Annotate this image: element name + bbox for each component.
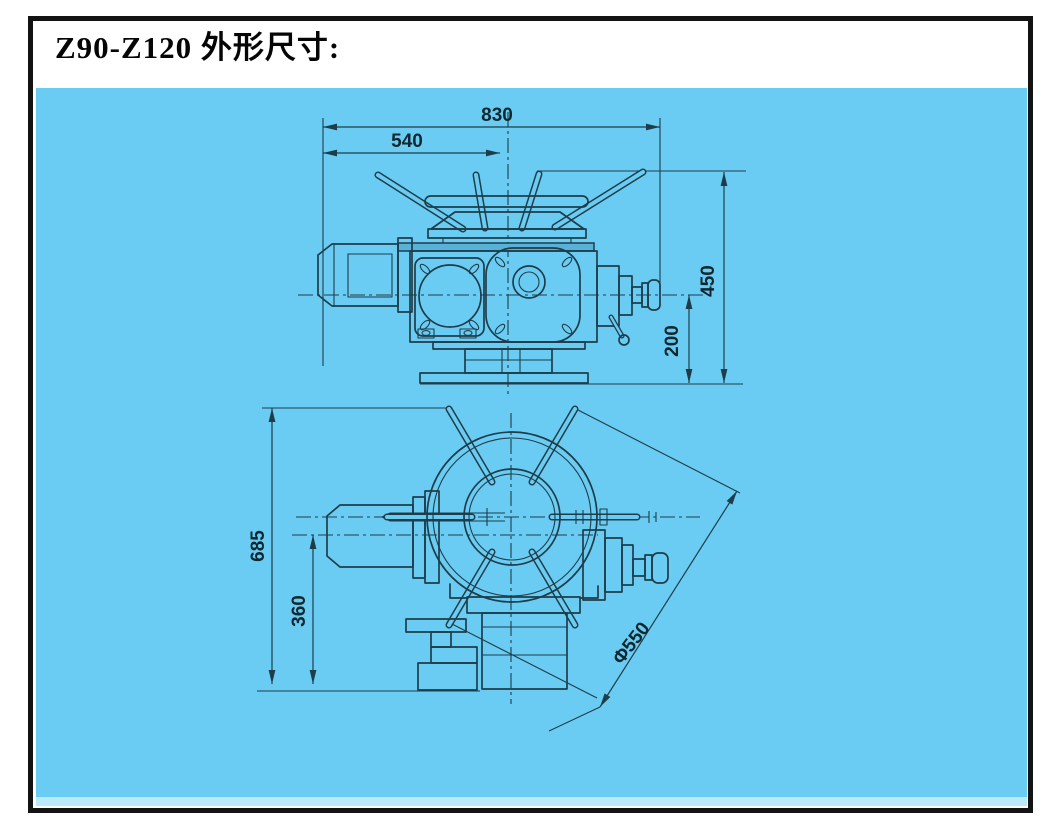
technical-drawing: 830 540 450 200 — [0, 0, 1044, 831]
dim-motor-axis-to-base-label: 360 — [289, 595, 310, 627]
tv-dimensions: 685 360 Φ550 — [248, 408, 737, 731]
dim-handwheel-diameter-label: Φ550 — [609, 619, 655, 669]
dim-total-height-label: 450 — [698, 265, 719, 297]
dim-total-width-label: 830 — [481, 105, 513, 126]
page: Z90-Z120 外形尺寸: — [0, 0, 1044, 831]
tv-base — [406, 584, 598, 690]
fv-output-shaft — [597, 266, 660, 345]
fv-base-flange — [420, 342, 588, 383]
top-view: 685 360 Φ550 — [248, 408, 740, 731]
dim-width-to-axis-label: 540 — [391, 131, 423, 152]
fv-motor — [318, 238, 412, 312]
dim-axis-to-base-label: 200 — [662, 325, 683, 357]
tv-output-shaft — [583, 530, 668, 600]
fv-handwheel — [378, 172, 643, 251]
front-view: 830 540 450 200 — [298, 105, 746, 398]
dim-total-length-label: 685 — [248, 530, 269, 562]
